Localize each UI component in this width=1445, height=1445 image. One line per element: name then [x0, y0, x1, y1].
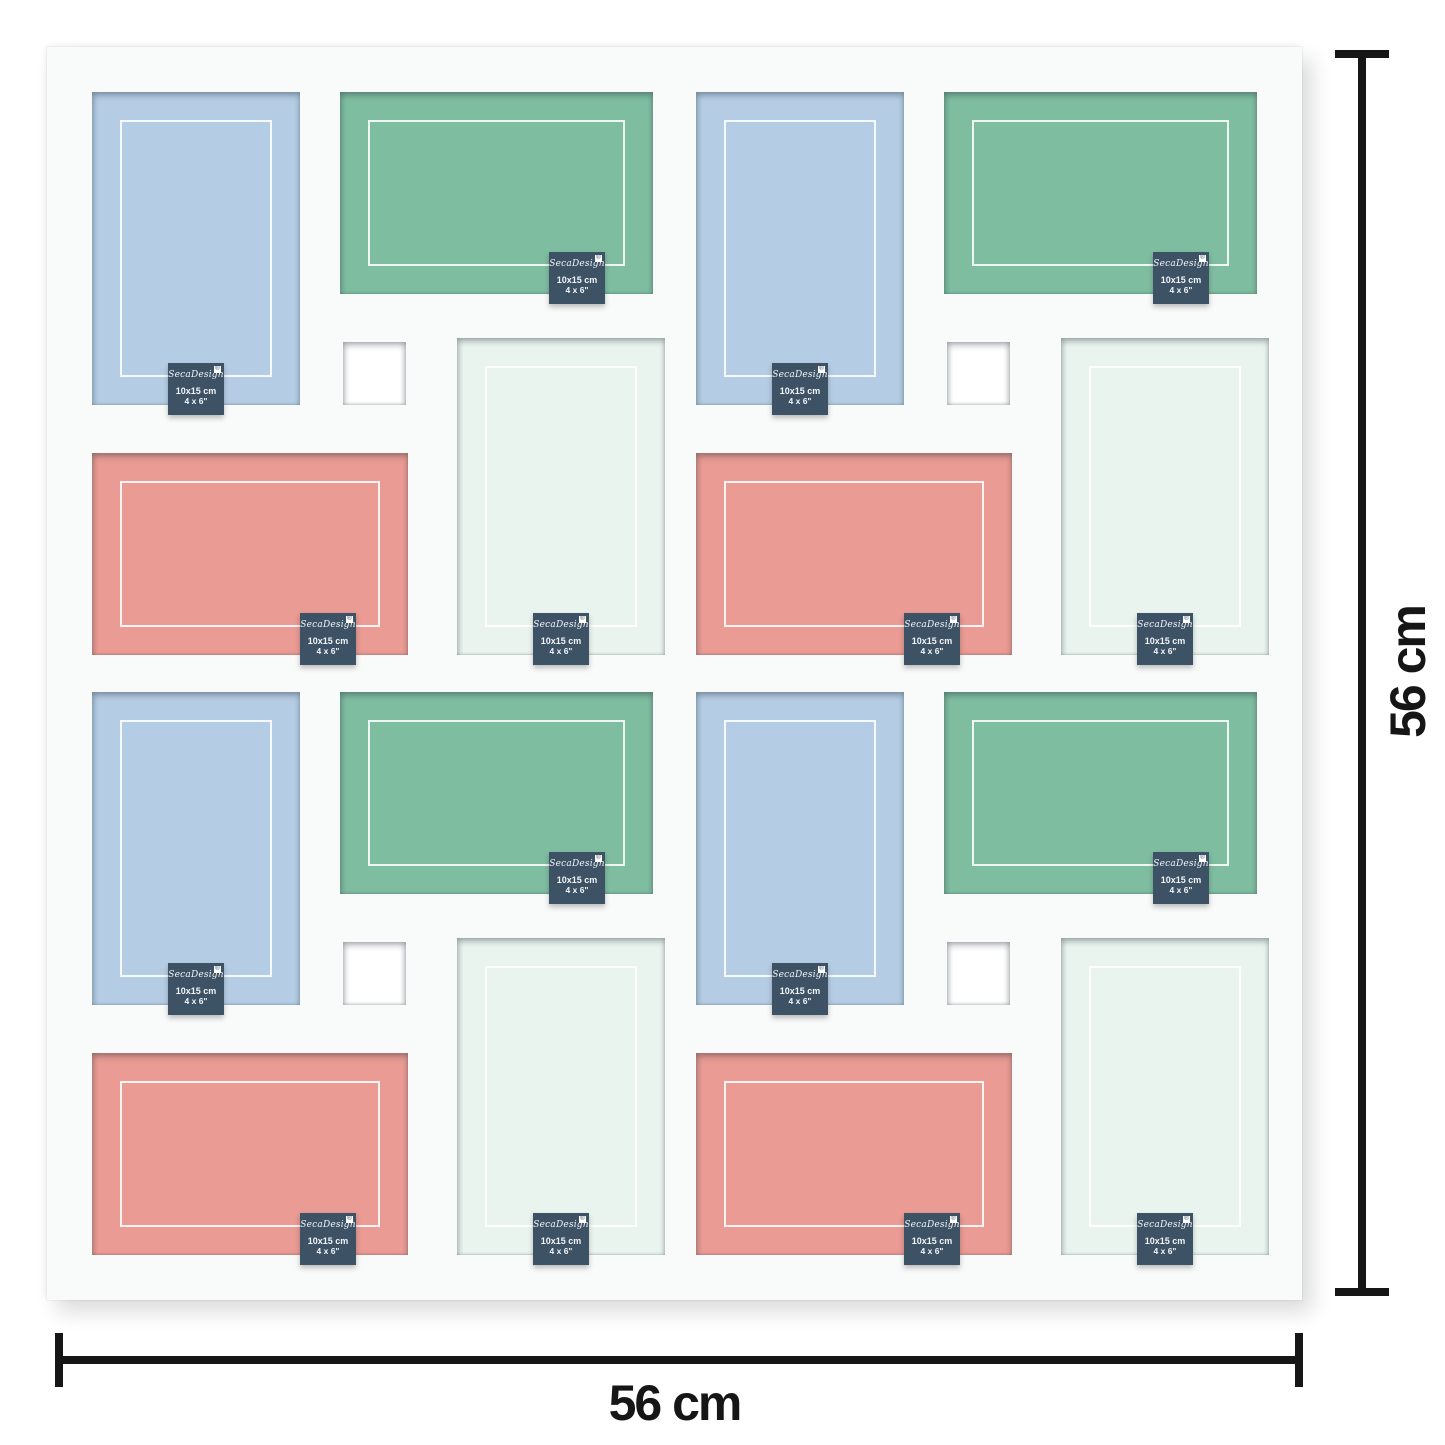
tag-size-inch-text: 4 x 6": [1153, 286, 1209, 296]
registered-mark-icon: ®: [818, 966, 825, 973]
secadesign-size-tag: ®SecaDesign10x15 cm4 x 6": [168, 363, 224, 415]
registered-mark-icon: ®: [346, 1216, 353, 1223]
photo-inner-border: [368, 720, 625, 866]
photo-opening-green-landscape: [340, 92, 653, 294]
secadesign-size-tag: ®SecaDesign10x15 cm4 x 6": [772, 963, 828, 1015]
photo-inner-border: [724, 481, 984, 627]
height-dimension-top-cap: [1335, 50, 1389, 58]
photo-opening-blue-portrait: [92, 92, 300, 405]
registered-mark-icon: ®: [214, 966, 221, 973]
secadesign-size-tag: ®SecaDesign10x15 cm4 x 6": [533, 1213, 589, 1265]
photo-inner-border: [1089, 366, 1241, 627]
tag-size-inch-text: 4 x 6": [772, 397, 828, 407]
photo-opening-blue-portrait: [92, 692, 300, 1005]
registered-mark-icon: ®: [950, 1216, 957, 1223]
photo-opening-green-landscape: [944, 92, 1257, 294]
secadesign-size-tag: ®SecaDesign10x15 cm4 x 6": [168, 963, 224, 1015]
photo-opening-blue-portrait: [696, 692, 904, 1005]
tag-size-inch-text: 4 x 6": [549, 886, 605, 896]
small-square-opening: [343, 342, 406, 405]
photo-opening-salmon-landscape: [92, 1053, 408, 1255]
registered-mark-icon: ®: [346, 616, 353, 623]
tag-size-inch-text: 4 x 6": [533, 647, 589, 657]
registered-mark-icon: ®: [579, 1216, 586, 1223]
photo-opening-salmon-landscape: [696, 1053, 1012, 1255]
photo-opening-mint-portrait: [1061, 938, 1269, 1255]
secadesign-size-tag: ®SecaDesign10x15 cm4 x 6": [549, 252, 605, 304]
photo-opening-mint-portrait: [1061, 338, 1269, 655]
tag-size-inch-text: 4 x 6": [533, 1247, 589, 1257]
photo-inner-border: [368, 120, 625, 266]
photo-inner-border: [724, 1081, 984, 1227]
tag-size-inch-text: 4 x 6": [904, 647, 960, 657]
small-square-opening: [343, 942, 406, 1005]
photo-inner-border: [485, 366, 637, 627]
registered-mark-icon: ®: [579, 616, 586, 623]
secadesign-size-tag: ®SecaDesign10x15 cm4 x 6": [549, 852, 605, 904]
tag-size-inch-text: 4 x 6": [168, 997, 224, 1007]
photo-opening-green-landscape: [944, 692, 1257, 894]
photo-inner-border: [120, 1081, 380, 1227]
photo-opening-blue-portrait: [696, 92, 904, 405]
photo-opening-salmon-landscape: [92, 453, 408, 655]
registered-mark-icon: ®: [214, 366, 221, 373]
secadesign-size-tag: ®SecaDesign10x15 cm4 x 6": [1137, 613, 1193, 665]
width-dimension-label: 56 cm: [47, 1374, 1302, 1432]
photo-inner-border: [120, 720, 272, 977]
registered-mark-icon: ®: [1199, 855, 1206, 862]
tag-size-inch-text: 4 x 6": [168, 397, 224, 407]
photo-opening-mint-portrait: [457, 938, 665, 1255]
registered-mark-icon: ®: [1183, 1216, 1190, 1223]
photo-opening-mint-portrait: [457, 338, 665, 655]
registered-mark-icon: ®: [818, 366, 825, 373]
secadesign-size-tag: ®SecaDesign10x15 cm4 x 6": [1137, 1213, 1193, 1265]
registered-mark-icon: ®: [595, 855, 602, 862]
width-dimension-line: [55, 1356, 1303, 1364]
tag-size-inch-text: 4 x 6": [300, 1247, 356, 1257]
tag-size-inch-text: 4 x 6": [904, 1247, 960, 1257]
photo-inner-border: [120, 481, 380, 627]
tag-size-inch-text: 4 x 6": [1137, 1247, 1193, 1257]
photo-inner-border: [724, 120, 876, 377]
photo-inner-border: [724, 720, 876, 977]
secadesign-size-tag: ®SecaDesign10x15 cm4 x 6": [904, 613, 960, 665]
photo-opening-salmon-landscape: [696, 453, 1012, 655]
height-dimension-bottom-cap: [1335, 1288, 1389, 1296]
secadesign-size-tag: ®SecaDesign10x15 cm4 x 6": [1153, 252, 1209, 304]
small-square-opening: [947, 342, 1010, 405]
tag-size-inch-text: 4 x 6": [772, 997, 828, 1007]
secadesign-size-tag: ®SecaDesign10x15 cm4 x 6": [1153, 852, 1209, 904]
photo-inner-border: [120, 120, 272, 377]
photo-inner-border: [485, 966, 637, 1227]
tag-size-inch-text: 4 x 6": [300, 647, 356, 657]
height-dimension-label: 56 cm: [1328, 602, 1445, 742]
small-square-opening: [947, 942, 1010, 1005]
secadesign-size-tag: ®SecaDesign10x15 cm4 x 6": [904, 1213, 960, 1265]
photo-inner-border: [972, 120, 1229, 266]
product-image-collage-frame: ®SecaDesign10x15 cm4 x 6"®SecaDesign10x1…: [0, 0, 1445, 1445]
tag-size-inch-text: 4 x 6": [1153, 886, 1209, 896]
registered-mark-icon: ®: [1183, 616, 1190, 623]
secadesign-size-tag: ®SecaDesign10x15 cm4 x 6": [772, 363, 828, 415]
secadesign-size-tag: ®SecaDesign10x15 cm4 x 6": [300, 613, 356, 665]
photo-inner-border: [972, 720, 1229, 866]
registered-mark-icon: ®: [595, 255, 602, 262]
registered-mark-icon: ®: [1199, 255, 1206, 262]
secadesign-size-tag: ®SecaDesign10x15 cm4 x 6": [300, 1213, 356, 1265]
registered-mark-icon: ®: [950, 616, 957, 623]
photo-inner-border: [1089, 966, 1241, 1227]
secadesign-size-tag: ®SecaDesign10x15 cm4 x 6": [533, 613, 589, 665]
collage-frame-mat: ®SecaDesign10x15 cm4 x 6"®SecaDesign10x1…: [47, 47, 1302, 1300]
tag-size-inch-text: 4 x 6": [1137, 647, 1193, 657]
tag-size-inch-text: 4 x 6": [549, 286, 605, 296]
photo-opening-green-landscape: [340, 692, 653, 894]
